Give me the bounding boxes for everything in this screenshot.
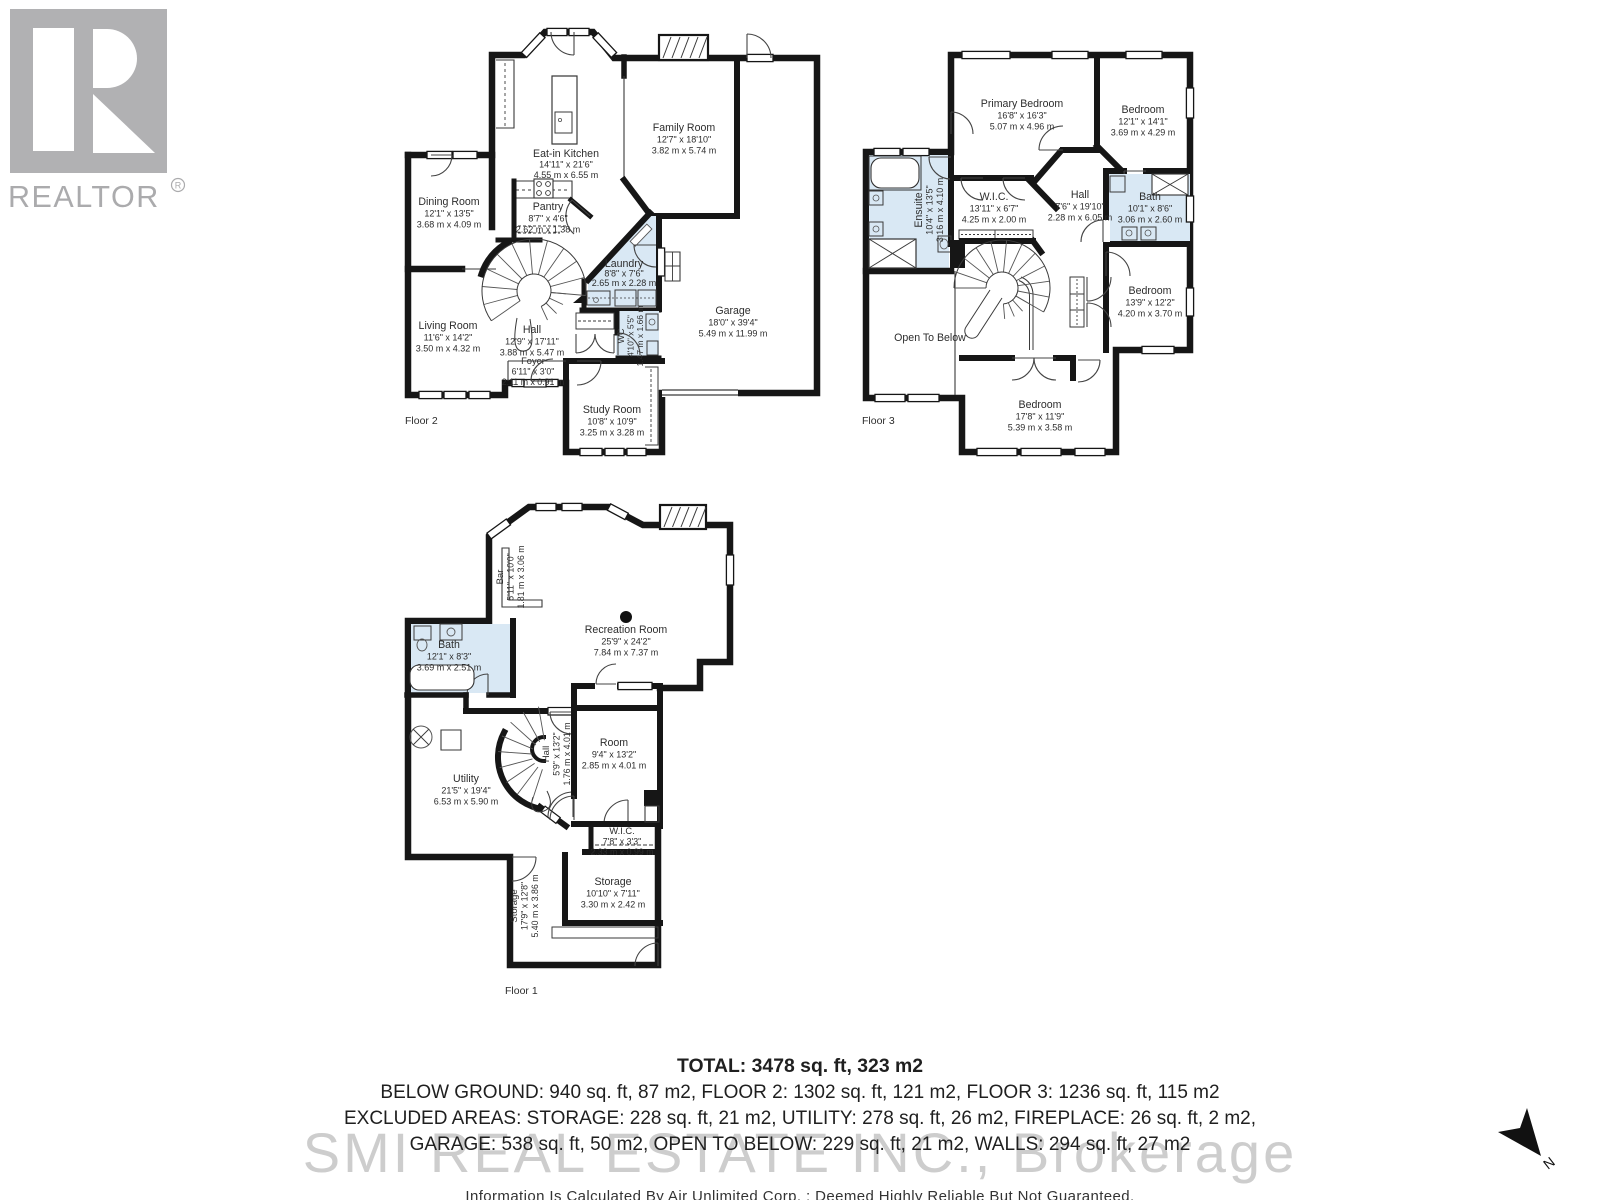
svg-text:Eat-in Kitchen14'11" x 21'6"4.: Eat-in Kitchen14'11" x 21'6"4.55 m x 6.5…	[533, 148, 599, 180]
svg-text:Information Is Calculated By A: Information Is Calculated By Air Unlimit…	[465, 1188, 1134, 1200]
svg-text:TOTAL: 3478 sq. ft, 323 m2: TOTAL: 3478 sq. ft, 323 m2	[677, 1055, 923, 1077]
svg-text:Floor 2: Floor 2	[405, 415, 438, 427]
svg-text:Open To Below: Open To Below	[894, 332, 966, 344]
svg-text:BELOW GROUND: 940 sq. ft, 87 m: BELOW GROUND: 940 sq. ft, 87 m2, FLOOR 2…	[380, 1082, 1219, 1103]
svg-text:Dining Room12'1" x 13'5"3.68 m: Dining Room12'1" x 13'5"3.68 m x 4.09 m	[417, 196, 482, 230]
svg-text:R: R	[175, 181, 182, 191]
svg-text:REALTOR: REALTOR	[8, 180, 160, 214]
svg-text:GARAGE: 538 sq. ft, 50 m2, OPE: GARAGE: 538 sq. ft, 50 m2, OPEN TO BELOW…	[410, 1134, 1191, 1155]
svg-text:Family Room12'7" x 18'10"3.82: Family Room12'7" x 18'10"3.82 m x 5.74 m	[652, 122, 717, 156]
svg-text:Study Room10'8" x 10'9"3.25 m: Study Room10'8" x 10'9"3.25 m x 3.28 m	[580, 404, 645, 438]
svg-text:Living Room11'6" x 14'2"3.50 m: Living Room11'6" x 14'2"3.50 m x 4.32 m	[416, 320, 481, 354]
svg-text:Floor 1: Floor 1	[505, 985, 538, 997]
svg-text:Floor 3: Floor 3	[862, 415, 895, 427]
svg-text:EXCLUDED AREAS: STORAGE: 228 s: EXCLUDED AREAS: STORAGE: 228 sq. ft, 21 …	[344, 1108, 1256, 1129]
